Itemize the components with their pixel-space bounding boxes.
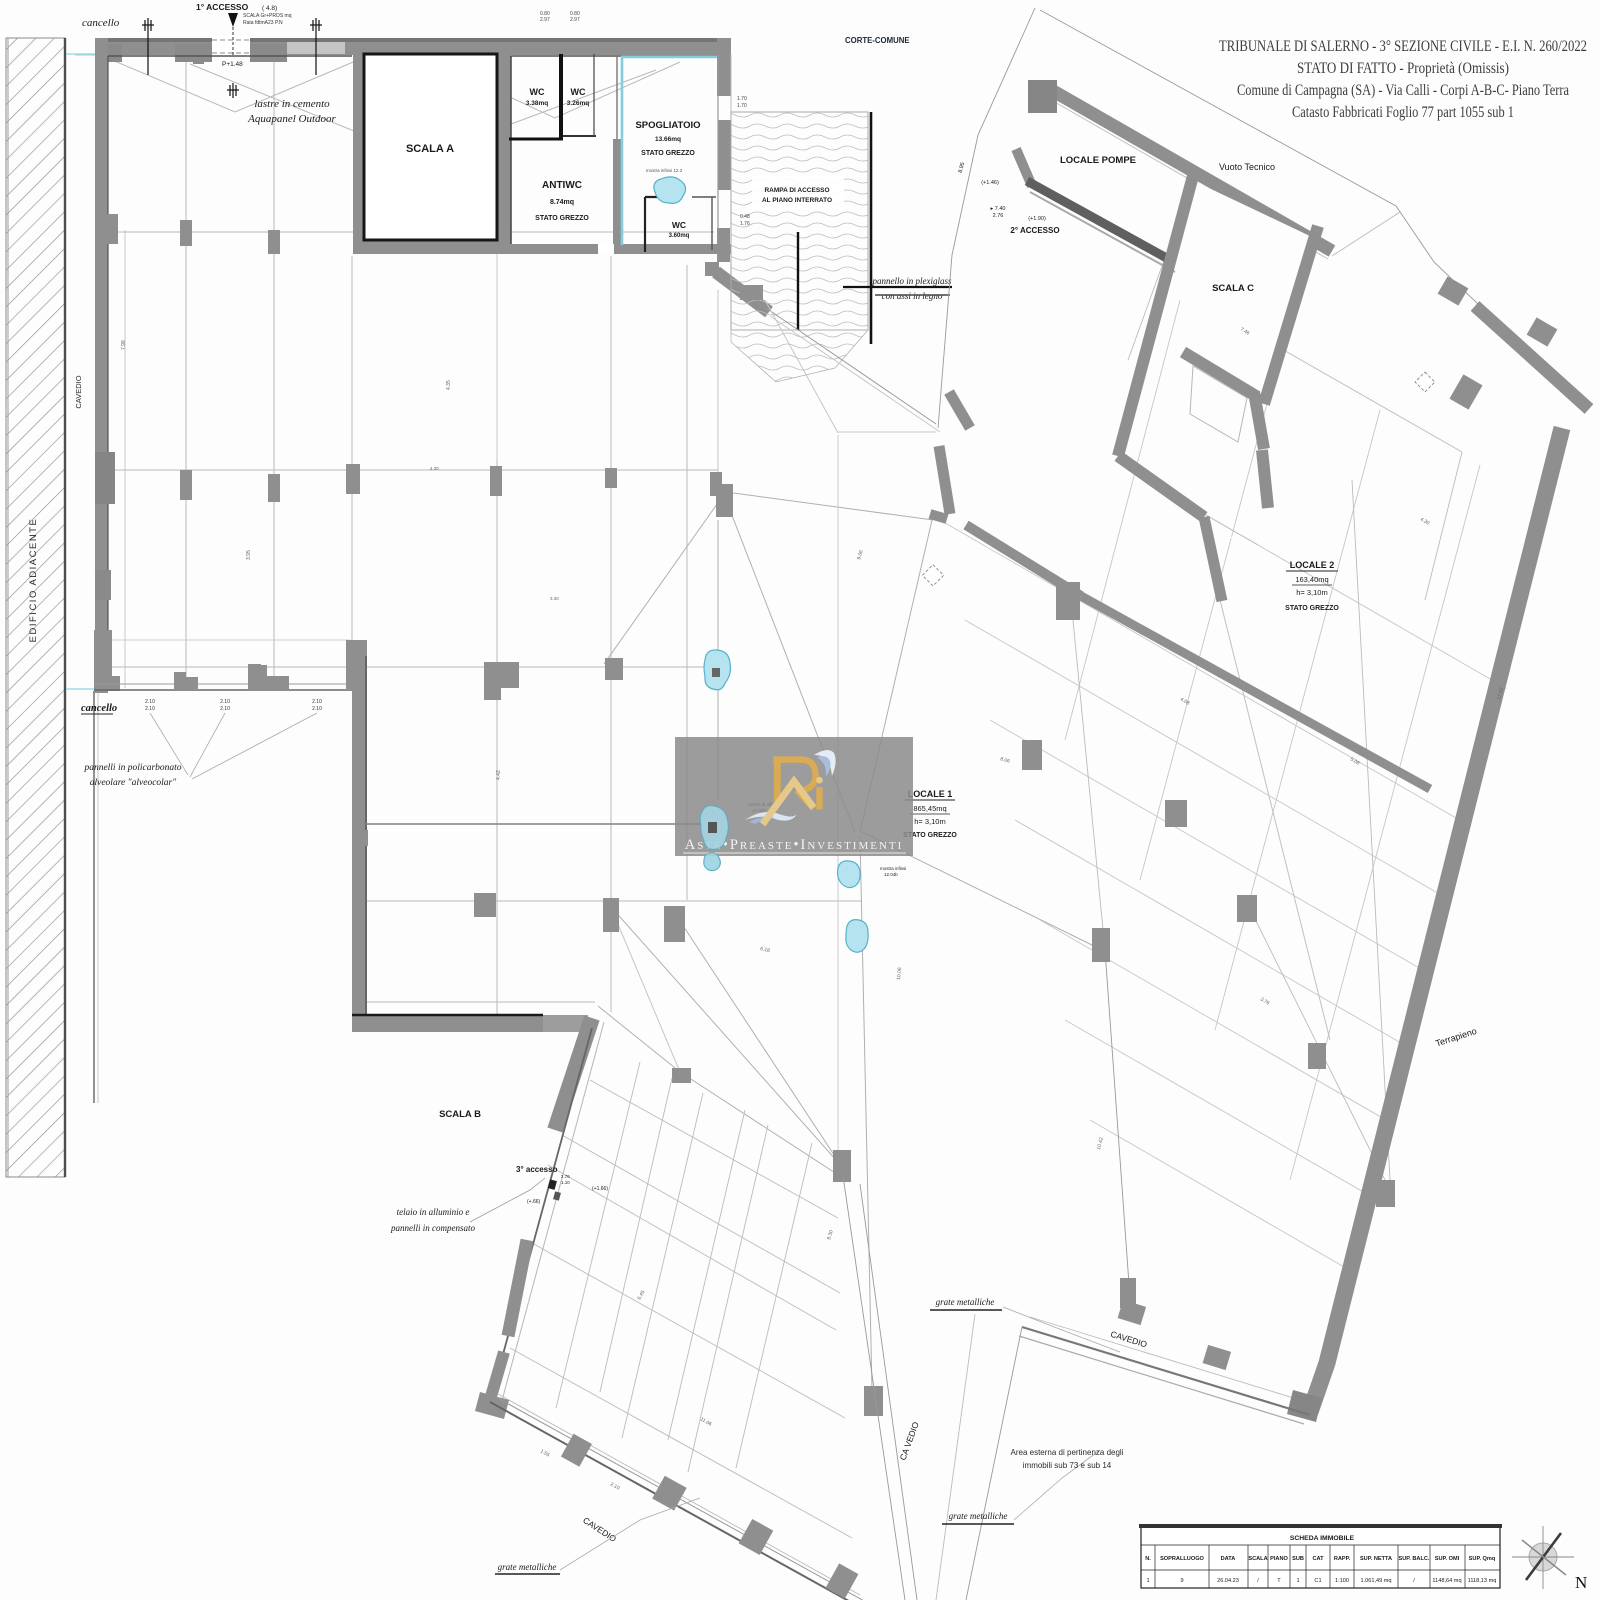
svg-text:Area esterna di pertinenza deg: Area esterna di pertinenza degli xyxy=(1011,1448,1124,1457)
svg-text:RAMPA DI ACCESSO: RAMPA DI ACCESSO xyxy=(764,187,829,194)
svg-text:SCALA C: SCALA C xyxy=(1212,283,1254,294)
svg-text:grate metalliche: grate metalliche xyxy=(936,1297,995,1307)
svg-text:h= 3,10m: h= 3,10m xyxy=(914,817,945,826)
svg-text:AL PIANO INTERRATO: AL PIANO INTERRATO xyxy=(762,197,832,204)
svg-text:STATO GREZZO: STATO GREZZO xyxy=(641,150,695,157)
svg-text:mostra infissi 12.3: mostra infissi 12.3 xyxy=(646,168,683,173)
svg-text:3.26mq: 3.26mq xyxy=(567,100,589,107)
svg-text:CORTE-COMUNE: CORTE-COMUNE xyxy=(845,36,910,45)
svg-text:LOCALE POMPE: LOCALE POMPE xyxy=(1060,155,1136,166)
svg-text:SOPRALLUOGO: SOPRALLUOGO xyxy=(1160,1556,1204,1562)
svg-text:9: 9 xyxy=(1180,1578,1183,1584)
svg-text:3° accesso: 3° accesso xyxy=(516,1165,558,1174)
svg-text:1118,13 mq: 1118,13 mq xyxy=(1468,1578,1497,1584)
svg-text:Comune di Campagna (SA) - Via: Comune di Campagna (SA) - Via Calli - Co… xyxy=(1237,82,1569,99)
svg-text:mostra infissi: mostra infissi xyxy=(880,866,906,871)
svg-text:1: 1 xyxy=(1296,1578,1299,1584)
svg-text:(+.66): (+.66) xyxy=(527,1199,541,1205)
svg-text:SUP. OMI: SUP. OMI xyxy=(1435,1556,1460,1562)
svg-text:26.04.23: 26.04.23 xyxy=(1217,1578,1239,1584)
svg-text:WC: WC xyxy=(672,220,686,230)
svg-text:4.35: 4.35 xyxy=(446,380,452,390)
svg-text:ANTIWC: ANTIWC xyxy=(542,180,582,191)
svg-text:LOCALE 2: LOCALE 2 xyxy=(1290,560,1335,570)
svg-text:pannello in plexiglass: pannello in plexiglass xyxy=(872,276,952,286)
svg-text:0.48: 0.48 xyxy=(740,214,750,220)
svg-text:RAPP.: RAPP. xyxy=(1334,1556,1351,1562)
svg-text:2.10: 2.10 xyxy=(312,699,322,705)
svg-text:2.76: 2.76 xyxy=(561,1174,570,1179)
svg-text:SPOGLIATOIO: SPOGLIATOIO xyxy=(635,120,700,131)
svg-text:P+1.48: P+1.48 xyxy=(222,61,243,68)
svg-text:con assi in legno: con assi in legno xyxy=(882,291,943,301)
svg-text:3.95: 3.95 xyxy=(246,550,252,560)
svg-text:1° ACCESSO: 1° ACCESSO xyxy=(196,2,249,12)
svg-text:1.76: 1.76 xyxy=(740,221,750,227)
svg-text:2.10: 2.10 xyxy=(145,699,155,705)
svg-text:163,40mq: 163,40mq xyxy=(1295,575,1328,584)
svg-text:grate metalliche: grate metalliche xyxy=(949,1511,1008,1521)
svg-text:STATO DI FATTO - Proprietà (Om: STATO DI FATTO - Proprietà (Omissis) xyxy=(1297,60,1509,77)
svg-text:1.70: 1.70 xyxy=(737,103,747,109)
svg-text:4.30: 4.30 xyxy=(430,466,439,471)
svg-text:3.30: 3.30 xyxy=(550,596,559,601)
svg-text:CAT: CAT xyxy=(1312,1556,1324,1562)
svg-text:lastre in cemento: lastre in cemento xyxy=(254,98,330,110)
svg-text:DATA: DATA xyxy=(1221,1556,1236,1562)
svg-text:STATO GREZZO: STATO GREZZO xyxy=(535,215,589,222)
svg-text:1.70: 1.70 xyxy=(737,96,747,102)
svg-text:SCHEDA IMMOBILE: SCHEDA IMMOBILE xyxy=(1290,1535,1355,1542)
svg-text:WC: WC xyxy=(571,87,586,97)
svg-text:8.74mq: 8.74mq xyxy=(550,199,574,206)
svg-text:13.66mq: 13.66mq xyxy=(655,136,681,143)
svg-text:2.97: 2.97 xyxy=(540,17,550,23)
svg-text:grate metalliche: grate metalliche xyxy=(498,1562,557,1572)
svg-text:telaio in alluminio e: telaio in alluminio e xyxy=(397,1207,470,1217)
svg-text:865,45mq: 865,45mq xyxy=(913,804,946,813)
svg-text:pannelli in compensato: pannelli in compensato xyxy=(390,1223,475,1233)
svg-text:EDIFICIO ADIACENTE: EDIFICIO ADIACENTE xyxy=(28,518,39,643)
svg-text:cancello: cancello xyxy=(81,703,117,714)
svg-text:Catasto Fabbricati Foglio 77 p: Catasto Fabbricati Foglio 77 part 1055 s… xyxy=(1292,104,1514,121)
svg-text:SCALA Gr+PROS mq: SCALA Gr+PROS mq xyxy=(243,13,292,19)
svg-text:2.97: 2.97 xyxy=(570,17,580,23)
svg-text:Rata fdtmA23 P.N: Rata fdtmA23 P.N xyxy=(243,20,283,26)
svg-text:N.: N. xyxy=(1145,1556,1151,1562)
svg-text:immobili sub 73 e sub 14: immobili sub 73 e sub 14 xyxy=(1023,1461,1112,1470)
svg-text:cancello: cancello xyxy=(82,17,120,29)
svg-text:T: T xyxy=(1277,1578,1281,1584)
svg-text:Aquapanel Outdoor: Aquapanel Outdoor xyxy=(247,113,336,125)
svg-text:SUB: SUB xyxy=(1292,1556,1304,1562)
svg-text:▸ 7.40: ▸ 7.40 xyxy=(991,206,1006,212)
svg-text:N: N xyxy=(1575,1573,1587,1592)
svg-text:h= 3,10m: h= 3,10m xyxy=(1296,588,1327,597)
svg-text:10.06: 10.06 xyxy=(896,967,903,980)
svg-text:2.10: 2.10 xyxy=(312,706,322,712)
svg-text:( 4.8): ( 4.8) xyxy=(262,5,277,12)
svg-text:1:100: 1:100 xyxy=(1335,1578,1349,1584)
svg-text:PIANO: PIANO xyxy=(1270,1556,1288,1562)
svg-text:pannelli in policarbonato: pannelli in policarbonato xyxy=(83,763,181,773)
svg-text:C1: C1 xyxy=(1314,1578,1321,1584)
svg-text:2.10: 2.10 xyxy=(220,699,230,705)
svg-text:1.10: 1.10 xyxy=(561,1180,570,1185)
svg-text:(+1.46): (+1.46) xyxy=(981,180,999,186)
svg-text:alveolare "alveocolar": alveolare "alveocolar" xyxy=(90,778,178,788)
svg-text:SUP. NETTA: SUP. NETTA xyxy=(1360,1556,1392,1562)
svg-text:STATO GREZZO: STATO GREZZO xyxy=(1285,605,1339,612)
svg-text:1148,64 mq: 1148,64 mq xyxy=(1432,1578,1461,1584)
svg-text:SCALA B: SCALA B xyxy=(439,1109,481,1120)
svg-text:2.10: 2.10 xyxy=(220,706,230,712)
svg-text:7.98: 7.98 xyxy=(121,340,127,350)
svg-text:1.061,49 mq: 1.061,49 mq xyxy=(1360,1578,1391,1584)
svg-text:CAVEDIO: CAVEDIO xyxy=(74,375,83,408)
svg-text:LOCALE 1: LOCALE 1 xyxy=(908,789,953,799)
svg-text:2.76: 2.76 xyxy=(993,213,1004,219)
svg-text:(+1.90): (+1.90) xyxy=(1028,216,1046,222)
svg-text:12.04b: 12.04b xyxy=(884,872,898,877)
svg-text:SCALA: SCALA xyxy=(1248,1556,1267,1562)
svg-text:SCALA A: SCALA A xyxy=(406,143,454,155)
svg-text:SUP. BALC.: SUP. BALC. xyxy=(1399,1556,1430,1562)
svg-text:4.42: 4.42 xyxy=(496,770,502,780)
svg-text:2.10: 2.10 xyxy=(145,706,155,712)
svg-text:2° ACCESSO: 2° ACCESSO xyxy=(1010,226,1059,235)
svg-text:(+1.66): (+1.66) xyxy=(592,1186,608,1192)
svg-text:3.38mq: 3.38mq xyxy=(526,100,548,107)
svg-text:SUP. Qmq: SUP. Qmq xyxy=(1469,1556,1496,1562)
svg-text:1: 1 xyxy=(1146,1578,1149,1584)
svg-text:3.60mq: 3.60mq xyxy=(669,233,690,239)
svg-text:TRIBUNALE DI SALERNO - 3° SEZI: TRIBUNALE DI SALERNO - 3° SEZIONE CIVILE… xyxy=(1219,38,1587,55)
svg-text:WC: WC xyxy=(530,87,545,97)
svg-text:Vuoto Tecnico: Vuoto Tecnico xyxy=(1219,162,1275,172)
